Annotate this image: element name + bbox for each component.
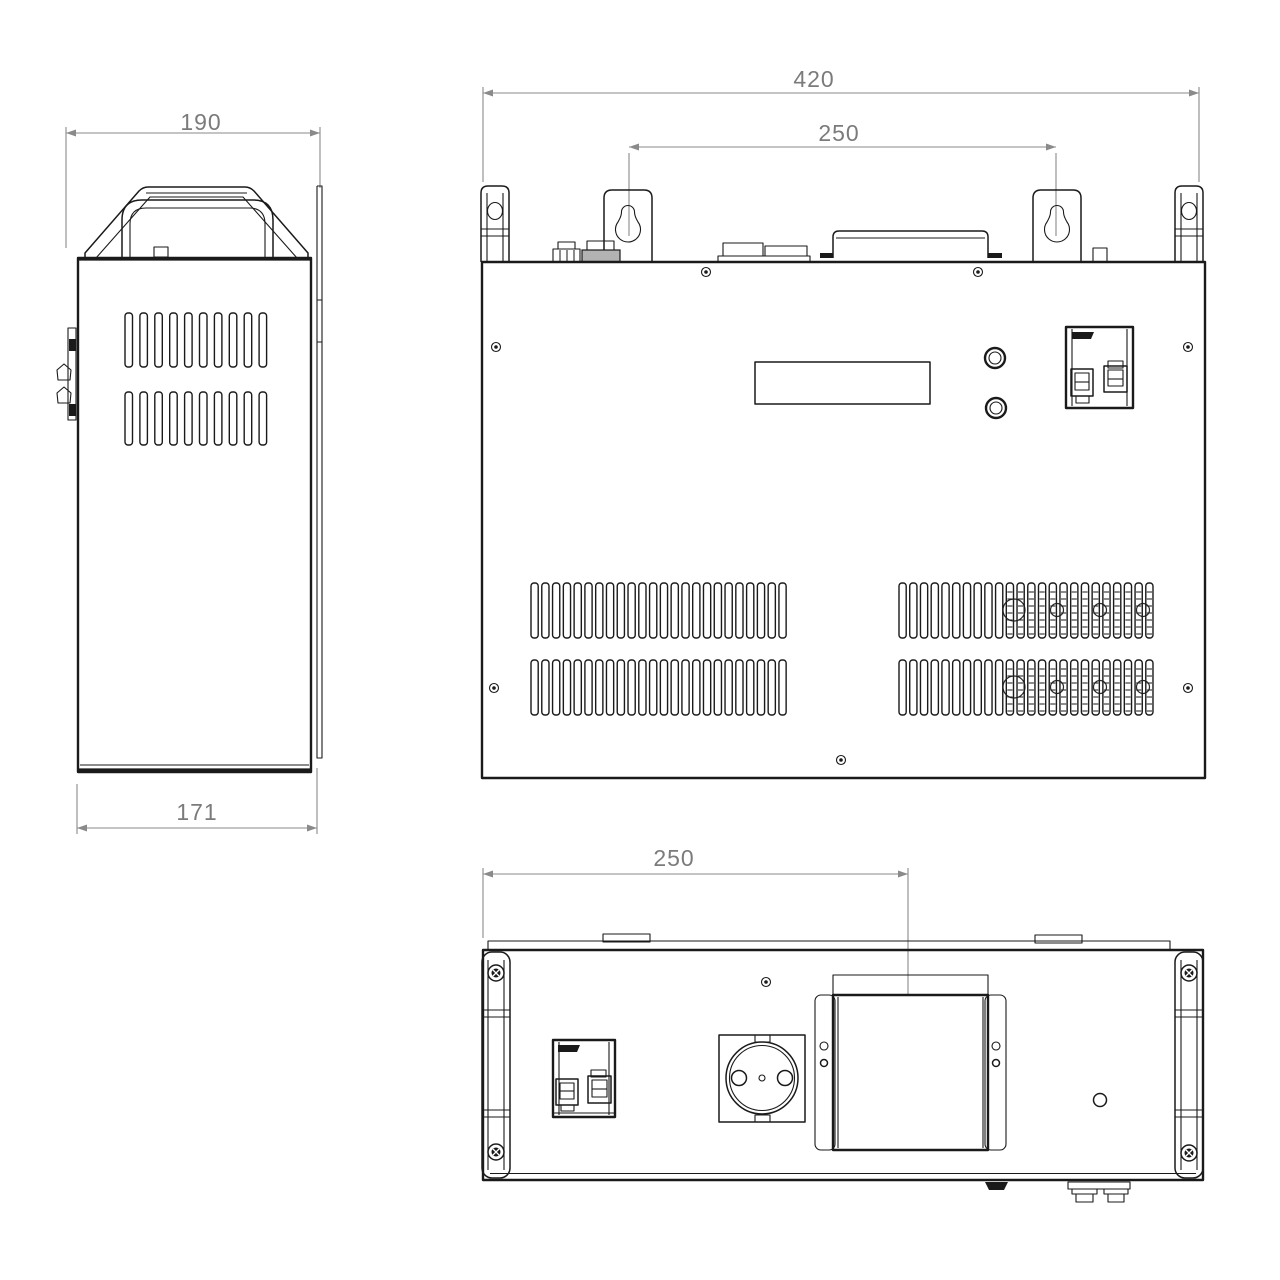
- dim-label-bracket-spacing: 250: [818, 120, 859, 146]
- socket-pin-hole: [778, 1071, 793, 1086]
- technical-drawing: 190: [0, 0, 1280, 1280]
- screw: [974, 268, 983, 277]
- side-view: 190: [57, 109, 322, 834]
- dim-bottom-offset: 250: [483, 845, 908, 995]
- handle-screw: [1181, 965, 1197, 981]
- handle-bar-left: [482, 952, 510, 1178]
- socket-earth-pin: [759, 1075, 765, 1081]
- breaker-toggle-right: [588, 1070, 611, 1103]
- corner-handle-top-right: [1175, 186, 1203, 262]
- screw: [702, 268, 711, 277]
- handle-screw: [488, 965, 504, 981]
- cable-gland-hole: [1094, 1094, 1107, 1107]
- front-panel: [482, 262, 1205, 778]
- connector-block: [1104, 1189, 1128, 1202]
- rear-flange-strip: [488, 934, 1170, 950]
- top-connector-block: [718, 243, 810, 262]
- button-lower: [986, 398, 1006, 418]
- display-window: [755, 362, 930, 404]
- connector-block: [1072, 1189, 1097, 1202]
- circuit-breaker-front: [1066, 327, 1133, 408]
- dim-side-width: 190: [66, 109, 320, 248]
- screw: [1184, 343, 1193, 352]
- handle-screw: [488, 1144, 504, 1160]
- dim-label-side-width: 190: [180, 109, 221, 135]
- bottom-panel: [483, 950, 1203, 1180]
- top-terminal-large: [582, 241, 620, 262]
- carry-handle: [85, 187, 308, 258]
- breaker-toggle-left: [1071, 369, 1093, 403]
- mount-bracket-right: [1033, 190, 1081, 262]
- bottom-connectors: [1068, 1182, 1130, 1202]
- top-cover-box: [820, 231, 1002, 258]
- power-socket: [719, 1035, 805, 1122]
- top-terminal-small: [553, 242, 580, 262]
- front-view: 420 250: [481, 66, 1205, 778]
- dim-label-side-depth: 171: [176, 799, 217, 825]
- screw: [762, 978, 771, 987]
- circuit-breaker-bottom: [553, 1040, 615, 1117]
- corner-handle-top-left: [481, 186, 509, 262]
- handle-bar-right: [1175, 952, 1203, 1178]
- dim-side-depth: 171: [77, 768, 317, 834]
- dim-label-front-width: 420: [793, 66, 834, 92]
- front-vent-grille-right: [899, 583, 1153, 715]
- drawing-svg: 190: [0, 0, 1280, 1280]
- side-body: [57, 186, 322, 772]
- socket-pin-hole: [732, 1071, 747, 1086]
- top-small-stud: [1093, 248, 1107, 262]
- handle-screw: [1181, 1145, 1197, 1161]
- screw: [837, 756, 846, 765]
- button-upper: [985, 348, 1005, 368]
- rubber-foot: [985, 1182, 1008, 1190]
- side-vent-grille: [125, 313, 267, 445]
- terminal-cover-box: [815, 975, 1006, 1150]
- dim-bracket-spacing: 250: [629, 120, 1056, 236]
- screw: [490, 684, 499, 693]
- screw: [1184, 684, 1193, 693]
- bottom-view: 250: [482, 845, 1203, 1202]
- front-vent-grille-left: [531, 583, 786, 715]
- breaker-toggle-right: [1104, 361, 1127, 392]
- mount-flange-edge: [317, 186, 322, 758]
- dim-label-bottom-offset: 250: [653, 845, 694, 871]
- screw: [492, 343, 501, 352]
- hinge-hardware: [57, 328, 76, 420]
